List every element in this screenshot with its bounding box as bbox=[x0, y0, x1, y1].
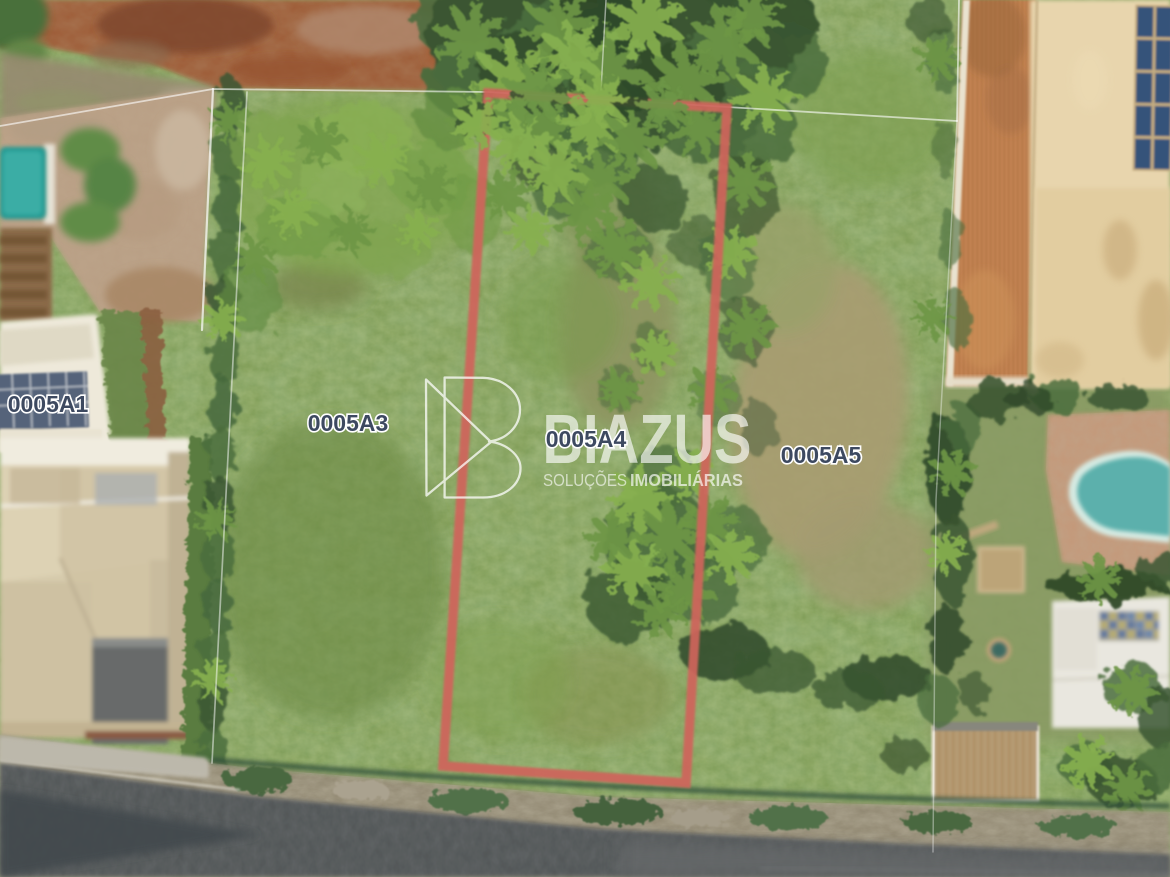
svg-text:0005A4: 0005A4 bbox=[546, 426, 627, 452]
svg-text:0005A3: 0005A3 bbox=[308, 410, 389, 436]
svg-text:IMOBILIÁRIAS: IMOBILIÁRIAS bbox=[630, 469, 743, 490]
svg-text:0005A5: 0005A5 bbox=[781, 442, 862, 468]
svg-text:SOLUÇÕES: SOLUÇÕES bbox=[543, 469, 627, 490]
svg-text:0005A1: 0005A1 bbox=[8, 391, 89, 417]
